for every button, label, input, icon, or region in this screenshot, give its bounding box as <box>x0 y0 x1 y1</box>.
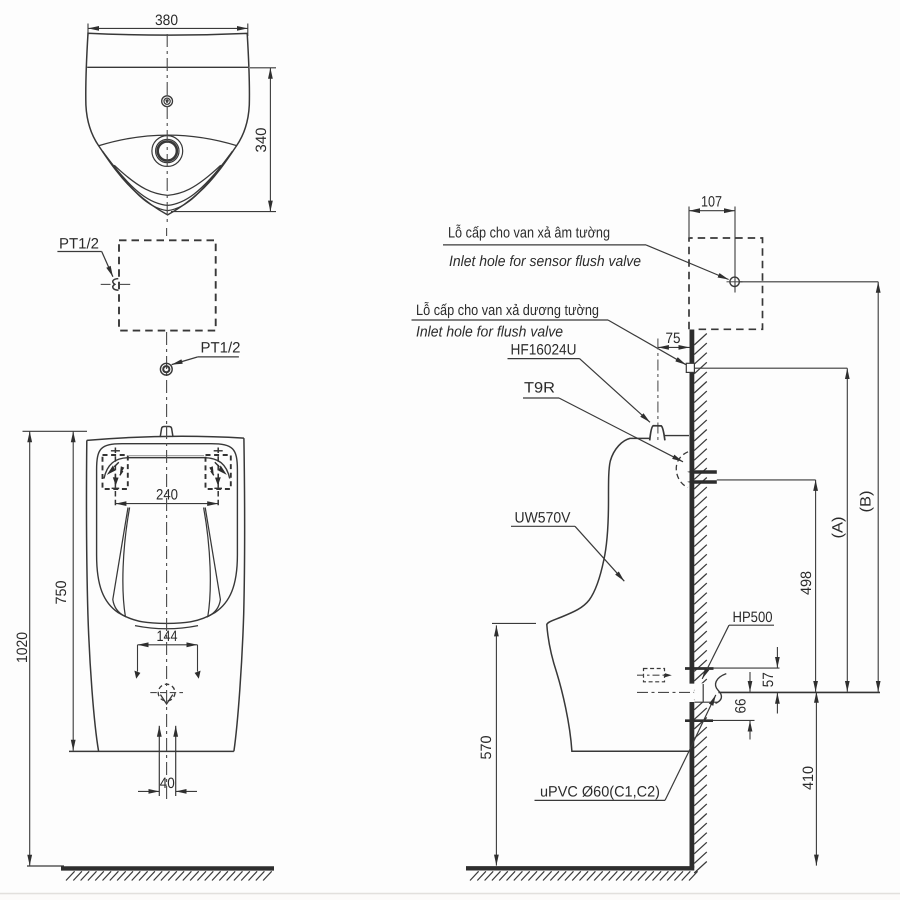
svg-text:40: 40 <box>160 775 175 792</box>
svg-text:750: 750 <box>53 581 70 605</box>
svg-text:570: 570 <box>478 736 495 760</box>
svg-text:Inlet hole for flush valve: Inlet hole for flush valve <box>416 323 563 340</box>
svg-text:Lỗ cấp cho van xả dương tường: Lỗ cấp cho van xả dương tường <box>416 302 599 319</box>
svg-text:410: 410 <box>800 766 817 790</box>
svg-text:380: 380 <box>155 12 178 29</box>
svg-text:uPVC Ø60(C1,C2): uPVC Ø60(C1,C2) <box>540 783 660 800</box>
svg-text:66: 66 <box>732 699 749 714</box>
svg-text:57: 57 <box>760 672 777 687</box>
svg-text:HF16024U: HF16024U <box>511 341 577 358</box>
svg-text:(A): (A) <box>829 517 846 539</box>
svg-text:75: 75 <box>666 330 681 347</box>
svg-text:340: 340 <box>253 128 270 153</box>
svg-text:Inlet hole for sensor flush va: Inlet hole for sensor flush valve <box>449 253 641 270</box>
svg-text:PT1/2: PT1/2 <box>59 235 99 252</box>
svg-text:Lỗ cấp cho van xả âm tường: Lỗ cấp cho van xả âm tường <box>448 224 610 241</box>
svg-text:(B): (B) <box>858 491 875 513</box>
svg-text:HP500: HP500 <box>733 609 773 626</box>
svg-text:498: 498 <box>798 571 815 595</box>
svg-text:1020: 1020 <box>14 632 31 663</box>
svg-text:UW570V: UW570V <box>515 510 571 527</box>
svg-text:T9R: T9R <box>524 379 555 396</box>
svg-text:107: 107 <box>701 194 722 211</box>
svg-text:PT1/2: PT1/2 <box>201 340 241 357</box>
